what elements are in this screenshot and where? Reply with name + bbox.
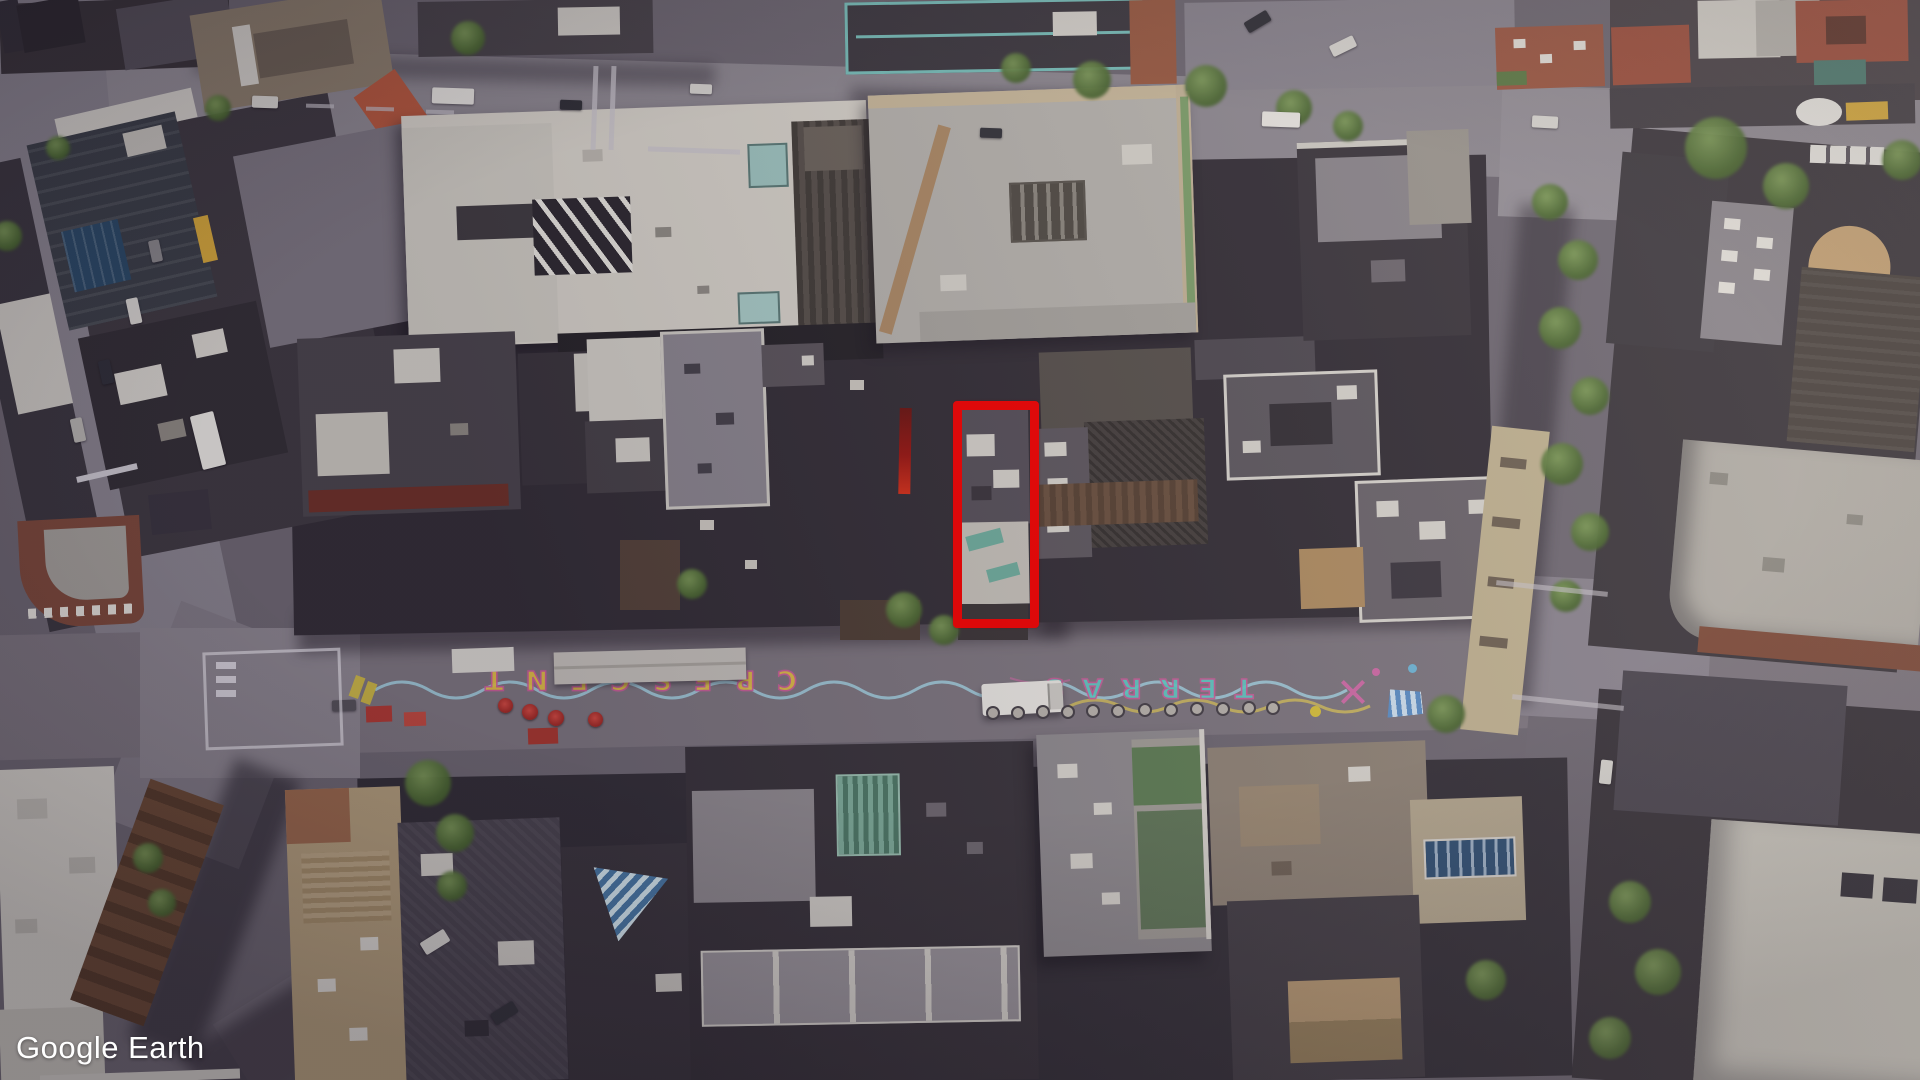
awning-row-red bbox=[308, 484, 509, 513]
roof-vent bbox=[1846, 514, 1863, 525]
building-roof bbox=[587, 337, 668, 424]
street-tent bbox=[452, 647, 515, 673]
teal-gable-roof bbox=[836, 773, 901, 856]
roof-unit bbox=[697, 286, 709, 294]
highlight-rectangle bbox=[953, 401, 1039, 628]
roof-unit bbox=[1053, 11, 1097, 36]
tree bbox=[1550, 580, 1582, 612]
building-roof bbox=[1207, 740, 1430, 906]
brick-building bbox=[1129, 0, 1176, 84]
building-roof bbox=[561, 843, 696, 1080]
roof-unit bbox=[114, 364, 168, 405]
parked-vans bbox=[1810, 145, 1885, 166]
planter bbox=[1113, 706, 1123, 716]
planter bbox=[1268, 703, 1278, 713]
skylight bbox=[1721, 250, 1738, 262]
roof-vent bbox=[698, 463, 712, 473]
roof-unit bbox=[655, 227, 671, 238]
roof-furniture bbox=[1573, 41, 1585, 50]
round-brick-building bbox=[17, 515, 144, 629]
red-umbrella bbox=[588, 712, 603, 727]
building-roof bbox=[1613, 670, 1847, 825]
roof-unit bbox=[498, 940, 535, 965]
roof-unit bbox=[17, 798, 48, 819]
roof-unit bbox=[122, 125, 166, 157]
red-roof-building bbox=[1795, 0, 1908, 63]
beige-building bbox=[285, 786, 410, 1080]
paint-dot-blue bbox=[1408, 664, 1417, 673]
aerial-imagery-canvas[interactable]: CRESCENT TERRAS Google Earth bbox=[0, 0, 1920, 1080]
tree bbox=[1001, 53, 1031, 83]
roof-vent bbox=[967, 842, 983, 854]
building-roof bbox=[660, 328, 770, 510]
roof-furniture bbox=[1513, 39, 1525, 48]
tree bbox=[205, 95, 231, 121]
corrugated-roof bbox=[301, 850, 391, 923]
roof-unit bbox=[850, 380, 864, 390]
striped-skylight-triangle bbox=[594, 862, 671, 943]
skylight-teal bbox=[737, 291, 780, 324]
roof-tan bbox=[1239, 784, 1321, 847]
roof-unit bbox=[700, 520, 714, 530]
tree bbox=[1685, 117, 1747, 179]
dark-building-complex bbox=[685, 741, 1039, 1080]
highlight-line-partial bbox=[898, 408, 911, 494]
building-roof bbox=[148, 489, 212, 535]
tree bbox=[1073, 61, 1111, 99]
building-roof bbox=[297, 331, 521, 516]
street-tent bbox=[1796, 98, 1842, 126]
roof-vent bbox=[464, 1020, 489, 1037]
roof-unit bbox=[1243, 440, 1261, 453]
car bbox=[980, 128, 1002, 139]
roof-unit bbox=[810, 896, 853, 927]
skylight bbox=[1718, 282, 1735, 294]
window-row bbox=[1479, 636, 1508, 649]
planter bbox=[988, 708, 998, 718]
green-roof bbox=[1137, 809, 1206, 929]
tree bbox=[677, 569, 707, 599]
car bbox=[252, 96, 278, 109]
wood-terrace bbox=[1037, 479, 1198, 527]
roof-unit bbox=[1070, 853, 1093, 869]
skylight bbox=[1882, 877, 1918, 903]
roof-unit bbox=[393, 348, 440, 384]
planter bbox=[1244, 703, 1254, 713]
tree bbox=[1539, 307, 1581, 349]
tan-roof bbox=[1299, 547, 1365, 609]
street-tent bbox=[554, 647, 747, 684]
tree bbox=[1571, 513, 1609, 551]
paint-dot-pink bbox=[1372, 668, 1380, 676]
solar-roof-building bbox=[1410, 796, 1526, 924]
roof-unit bbox=[192, 328, 228, 358]
solar-panels bbox=[61, 219, 131, 292]
planter bbox=[1192, 704, 1202, 714]
roof-tan-streak bbox=[879, 125, 951, 335]
tree bbox=[405, 760, 451, 806]
tree bbox=[436, 814, 474, 852]
green-roof bbox=[1132, 745, 1202, 805]
roof-unit bbox=[1348, 766, 1371, 782]
tree bbox=[451, 21, 485, 55]
skylight bbox=[1840, 872, 1874, 898]
lane-dash bbox=[426, 110, 454, 115]
tent-ridge bbox=[554, 661, 746, 669]
building-roof bbox=[1406, 129, 1471, 225]
tree bbox=[1635, 949, 1681, 995]
red-roof-building bbox=[1611, 25, 1691, 86]
roof-unit bbox=[655, 973, 682, 992]
skylight-building bbox=[1700, 201, 1794, 346]
office-tower-roof bbox=[1036, 729, 1212, 957]
truck-cab bbox=[1047, 683, 1063, 710]
lane-dash bbox=[306, 104, 334, 109]
roof-unit bbox=[15, 919, 37, 934]
roof-unit bbox=[940, 274, 967, 291]
white-border-building bbox=[1223, 369, 1381, 480]
roof-patch-brown bbox=[620, 540, 680, 610]
car bbox=[690, 84, 712, 95]
terrace-structure-red bbox=[404, 712, 426, 727]
roof-unit bbox=[1094, 802, 1112, 815]
roof-unit bbox=[1271, 861, 1291, 876]
solar-panel-row bbox=[1423, 836, 1516, 879]
roof-vent bbox=[926, 803, 946, 817]
skylight-teal bbox=[747, 143, 789, 188]
roof-court bbox=[1269, 402, 1332, 446]
crosswalk-bar bbox=[216, 676, 236, 683]
roof-unit bbox=[1337, 385, 1357, 400]
tree bbox=[46, 136, 70, 160]
roof-unit bbox=[1419, 521, 1446, 540]
roof-unit bbox=[349, 1027, 367, 1041]
roof-unit bbox=[157, 419, 186, 442]
planter bbox=[1140, 705, 1150, 715]
tree bbox=[1532, 184, 1568, 220]
gable-roof-tan bbox=[1288, 977, 1403, 1063]
building-roof bbox=[1787, 267, 1920, 452]
roof-unit bbox=[1376, 500, 1399, 517]
roof-unit bbox=[745, 560, 757, 569]
roof-unit bbox=[582, 149, 602, 162]
arch-windows bbox=[28, 603, 133, 618]
red-umbrella bbox=[548, 710, 564, 726]
roof-unit bbox=[1044, 442, 1066, 457]
truck bbox=[432, 87, 475, 104]
window-row bbox=[1492, 516, 1521, 529]
car bbox=[1532, 115, 1559, 128]
car bbox=[1599, 759, 1613, 784]
tree bbox=[133, 843, 163, 873]
roof-vent bbox=[1709, 472, 1728, 486]
roof-unit bbox=[1057, 764, 1077, 779]
google-earth-watermark: Google Earth bbox=[16, 1030, 205, 1066]
tree bbox=[437, 871, 467, 901]
hvac-cluster bbox=[1009, 180, 1087, 243]
roof-unit bbox=[450, 423, 468, 436]
roof-vent bbox=[1762, 557, 1785, 573]
building-roof bbox=[1227, 895, 1425, 1080]
roof-unit bbox=[1371, 259, 1406, 282]
roof-court bbox=[1390, 561, 1441, 599]
window-row bbox=[1500, 457, 1527, 470]
tree bbox=[1571, 377, 1609, 415]
roof-unit bbox=[558, 7, 620, 36]
car bbox=[1243, 10, 1271, 34]
skylight bbox=[1753, 269, 1770, 281]
terracotta-roof-deck bbox=[1495, 24, 1605, 90]
roof-center bbox=[44, 526, 130, 602]
building-roof bbox=[585, 419, 671, 494]
roof-furniture bbox=[1540, 54, 1552, 63]
roof-unit bbox=[318, 978, 336, 992]
tree bbox=[1333, 111, 1363, 141]
tree bbox=[886, 592, 922, 628]
tree bbox=[1185, 65, 1227, 107]
parking-lot-top bbox=[1184, 0, 1515, 91]
red-umbrella bbox=[498, 698, 513, 713]
roof-court bbox=[1826, 16, 1866, 45]
paint-dot-yellow bbox=[1310, 706, 1321, 717]
tree bbox=[1466, 960, 1506, 1000]
planter bbox=[1166, 705, 1176, 715]
tree bbox=[1558, 240, 1598, 280]
roof-unit bbox=[316, 412, 390, 476]
building-roof bbox=[761, 343, 824, 387]
planter bbox=[1088, 706, 1098, 716]
terrace-structure-red bbox=[528, 727, 559, 744]
lane-dash bbox=[366, 107, 394, 112]
crosswalk-bar bbox=[216, 690, 236, 697]
awning-yellow bbox=[1846, 101, 1889, 120]
tree bbox=[1541, 443, 1583, 485]
car bbox=[560, 100, 582, 111]
planter bbox=[1218, 704, 1228, 714]
department-store-roof bbox=[868, 84, 1198, 343]
roof-unit bbox=[1122, 144, 1153, 165]
skylight bbox=[1756, 237, 1773, 249]
tree bbox=[1589, 1017, 1631, 1059]
planter bbox=[1063, 707, 1073, 717]
roof-vent bbox=[684, 363, 700, 374]
planter bbox=[1038, 707, 1048, 717]
skylight bbox=[1724, 218, 1741, 230]
roof-vent-court bbox=[532, 196, 633, 275]
tree bbox=[148, 889, 176, 917]
white-roof-building bbox=[1693, 819, 1920, 1080]
roof-red-section bbox=[285, 788, 351, 844]
tree bbox=[1763, 163, 1809, 209]
red-umbrella bbox=[522, 704, 538, 720]
roof-unit bbox=[360, 937, 378, 951]
roof-courtyard bbox=[253, 19, 354, 78]
tree bbox=[1882, 140, 1920, 180]
roof-unit bbox=[1102, 892, 1120, 905]
truck bbox=[1262, 111, 1301, 127]
roof-unit bbox=[615, 437, 650, 462]
roof-unit bbox=[802, 355, 814, 365]
car bbox=[1329, 35, 1358, 57]
tree bbox=[1609, 881, 1651, 923]
roof-unit bbox=[803, 125, 863, 171]
terrace-structure-red bbox=[366, 706, 393, 723]
planter bbox=[1013, 708, 1023, 718]
roof-gray-section bbox=[692, 789, 816, 903]
crosswalk-bar bbox=[216, 662, 236, 669]
roof-unit bbox=[69, 857, 96, 874]
roof-vent bbox=[716, 412, 734, 425]
roof-green bbox=[1496, 71, 1526, 86]
colonnade-strip bbox=[701, 945, 1021, 1027]
